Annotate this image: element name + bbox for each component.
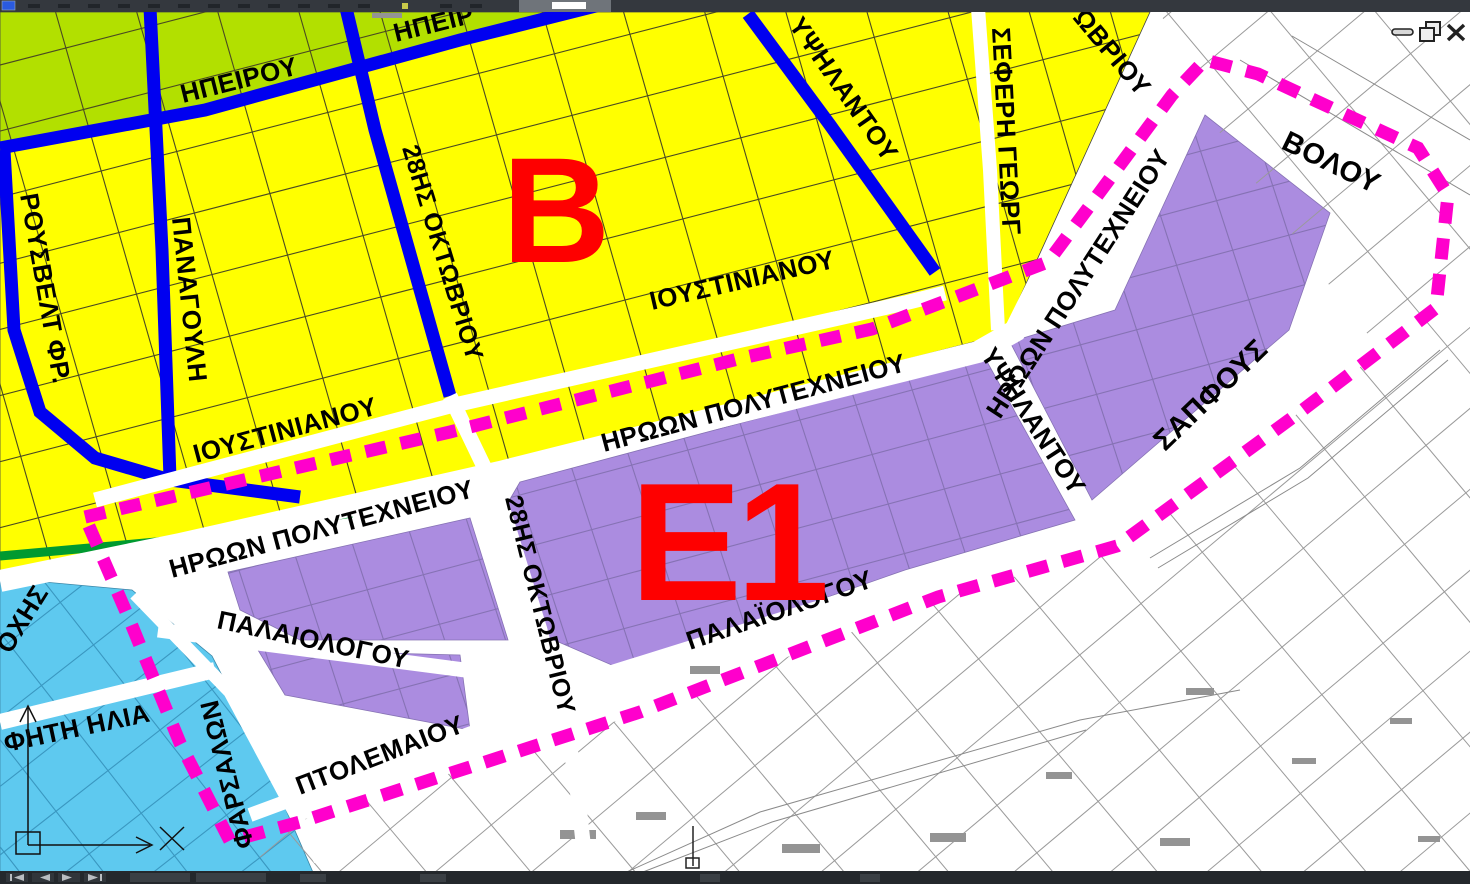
zone-label-e1: E1 xyxy=(630,448,825,636)
cad-application-window: ΗΠΕΙΡΟΥ ΗΠΕΙΡ ΡΟΥΣΒΕΛΤ ΦΡ. ΠΑΝΑΓΟΥΛΗ 28Η… xyxy=(0,0,1470,884)
tab-first-icon xyxy=(10,874,12,881)
map-canvas[interactable]: ΗΠΕΙΡΟΥ ΗΠΕΙΡ ΡΟΥΣΒΕΛΤ ΦΡ. ΠΑΝΑΓΟΥΛΗ 28Η… xyxy=(0,0,1470,884)
title-bar-dot-icon xyxy=(402,3,408,9)
app-icon[interactable] xyxy=(2,1,15,10)
tab-last-icon xyxy=(100,874,102,881)
title-bar-white-chip xyxy=(552,2,586,9)
layout-tabs-bar xyxy=(0,871,1470,884)
title-bar-background xyxy=(0,0,1470,12)
minimize-icon[interactable] xyxy=(1392,29,1413,35)
title-bar xyxy=(0,0,1470,12)
zone-label-b: B xyxy=(502,126,610,294)
